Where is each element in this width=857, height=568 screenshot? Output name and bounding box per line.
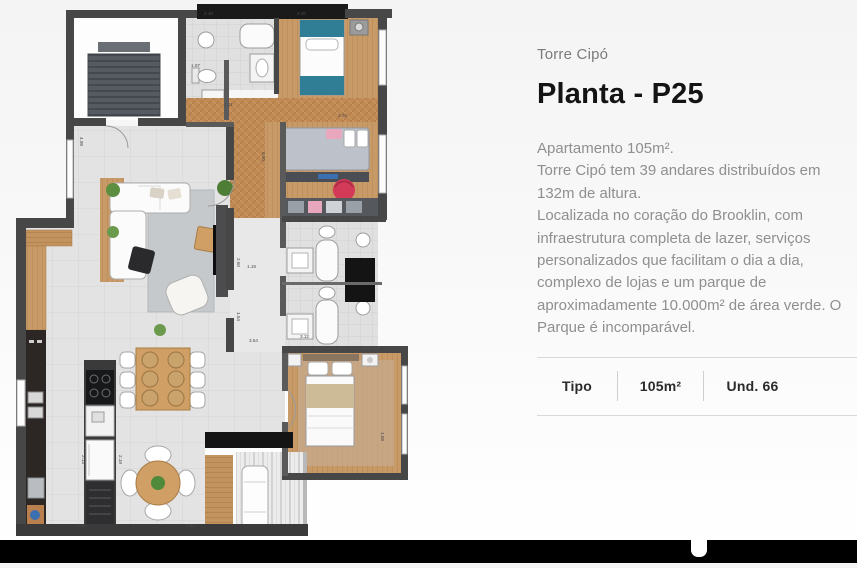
closet-dark bbox=[345, 258, 375, 302]
dining-table bbox=[120, 348, 205, 410]
description-line-3: Localizada no coração do Brooklin, com i… bbox=[537, 205, 851, 339]
fridge bbox=[86, 440, 114, 480]
dimension-label: 2.60 bbox=[236, 258, 241, 267]
dimension-label: 2.19 bbox=[118, 455, 123, 464]
dimension-label: 3.78 bbox=[338, 113, 347, 118]
dimension-label: 4.98 bbox=[79, 137, 84, 146]
bottom-bar bbox=[0, 540, 857, 563]
room-den bbox=[74, 18, 178, 120]
red-pouf bbox=[333, 179, 355, 201]
dimension-label: 1.40 bbox=[77, 523, 86, 528]
spec-type-label: Tipo bbox=[537, 378, 617, 394]
description-line-2: Torre Cipó tem 39 andares distribuídos e… bbox=[537, 160, 851, 205]
dimension-label: 2.91 bbox=[186, 523, 195, 528]
spec-area-value: 105m² bbox=[618, 378, 703, 394]
floor-plan: 2.102.401.071.213.780.904.982.601.541.19… bbox=[0, 0, 500, 563]
plant bbox=[106, 183, 120, 197]
description: Apartamento 105m². Torre Cipó tem 39 and… bbox=[537, 138, 851, 340]
dimension-label: 2.40 bbox=[297, 11, 306, 16]
project-name: Torre Cipó bbox=[537, 46, 857, 63]
dimension-label: 1.07 bbox=[191, 63, 200, 68]
dimension-label: 3.54 bbox=[249, 338, 258, 343]
dimension-label: 2.13 bbox=[81, 455, 86, 464]
dimension-label: 2.10 bbox=[204, 11, 213, 16]
cooktop bbox=[86, 370, 114, 404]
dimension-label: 1.19 bbox=[247, 264, 256, 269]
dimension-label: 1.21 bbox=[224, 102, 233, 107]
floor-plan-drawing: 2.102.401.071.213.780.904.982.601.541.19… bbox=[0, 0, 500, 563]
spec-units-value: Und. 66 bbox=[704, 378, 801, 394]
kitchen-sink bbox=[28, 392, 43, 403]
lounge-chair bbox=[242, 466, 268, 528]
oven bbox=[86, 482, 114, 528]
description-line-1: Apartamento 105m². bbox=[537, 138, 851, 160]
dimension-label: 1.58 bbox=[380, 432, 385, 441]
dimension-label: 1.54 bbox=[236, 312, 241, 321]
page-title: Planta - P25 bbox=[537, 78, 857, 111]
specs-table: Tipo 105m² Und. 66 bbox=[537, 357, 857, 416]
room-bedroom-1 bbox=[278, 18, 378, 100]
dimension-label: 0.90 bbox=[261, 152, 266, 161]
dimension-label: 3.12 bbox=[300, 334, 309, 339]
info-panel: Torre Cipó Planta - P25 Apartamento 105m… bbox=[537, 0, 857, 416]
balcony bbox=[205, 452, 307, 536]
page-scroll-tab[interactable] bbox=[691, 536, 707, 557]
